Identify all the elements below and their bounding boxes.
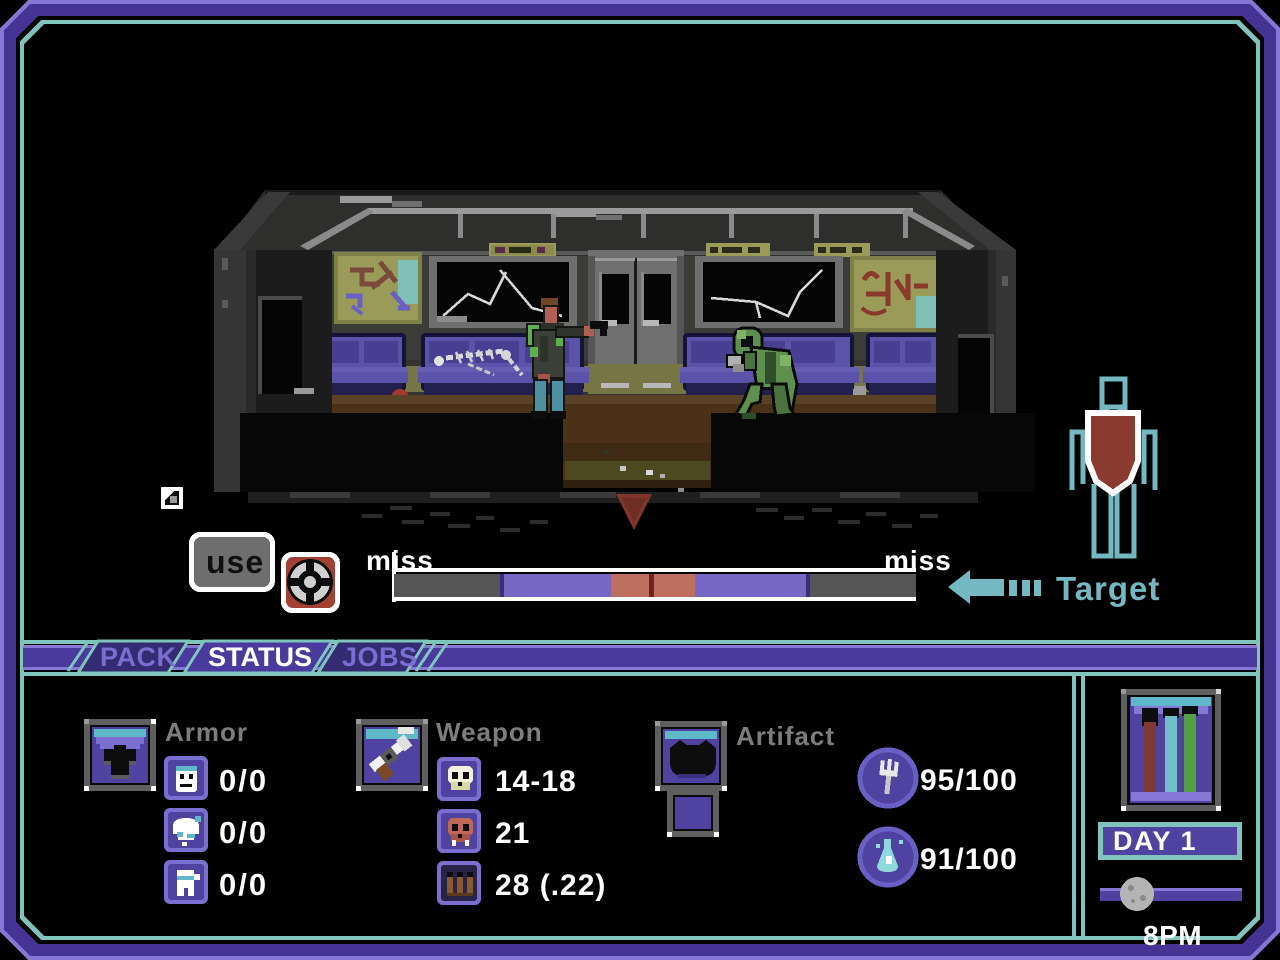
- svg-text:0/0: 0/0: [219, 763, 268, 798]
- svg-text:JOBS: JOBS: [342, 642, 418, 672]
- svg-text:8PM: 8PM: [1143, 920, 1202, 951]
- svg-text:Armor: Armor: [165, 717, 248, 747]
- svg-text:DAY 1: DAY 1: [1113, 826, 1197, 856]
- svg-text:use: use: [206, 544, 264, 580]
- svg-text:0/0: 0/0: [219, 867, 268, 902]
- svg-text:91/100: 91/100: [920, 843, 1018, 876]
- svg-text:PACK: PACK: [100, 642, 177, 672]
- svg-text:STATUS: STATUS: [208, 642, 312, 672]
- svg-text:Weapon: Weapon: [436, 717, 543, 747]
- svg-text:0/0: 0/0: [219, 815, 268, 850]
- svg-text:Target: Target: [1056, 570, 1160, 607]
- svg-text:28 (.22): 28 (.22): [495, 869, 606, 902]
- svg-text:95/100: 95/100: [920, 764, 1018, 797]
- svg-text:14-18: 14-18: [495, 765, 577, 798]
- svg-text:21: 21: [495, 817, 530, 850]
- svg-text:Artifact: Artifact: [736, 721, 835, 751]
